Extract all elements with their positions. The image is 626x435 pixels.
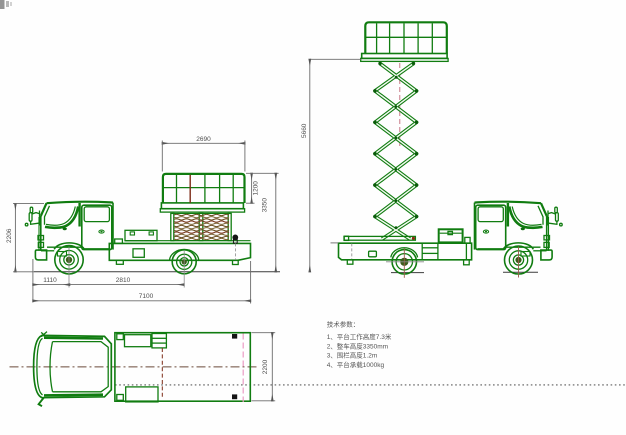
svg-text:3350: 3350 — [261, 198, 268, 213]
svg-text:2206: 2206 — [6, 228, 13, 243]
svg-text:5660: 5660 — [301, 123, 308, 138]
svg-text:2、整车高度3350mm: 2、整车高度3350mm — [327, 341, 388, 350]
svg-text:1200: 1200 — [252, 181, 259, 196]
svg-text:2690: 2690 — [196, 136, 211, 143]
svg-text:4、平台承载1000kg: 4、平台承载1000kg — [327, 360, 385, 369]
svg-text:2810: 2810 — [116, 277, 131, 284]
svg-text:2200: 2200 — [262, 359, 269, 374]
svg-text:技术参数：: 技术参数： — [327, 320, 360, 329]
svg-text:7100: 7100 — [139, 293, 154, 300]
svg-text:1、平台工作高度7.3米: 1、平台工作高度7.3米 — [327, 332, 392, 341]
svg-text:3、围栏高度1.2m: 3、围栏高度1.2m — [327, 351, 378, 360]
svg-text:1110: 1110 — [43, 277, 57, 284]
